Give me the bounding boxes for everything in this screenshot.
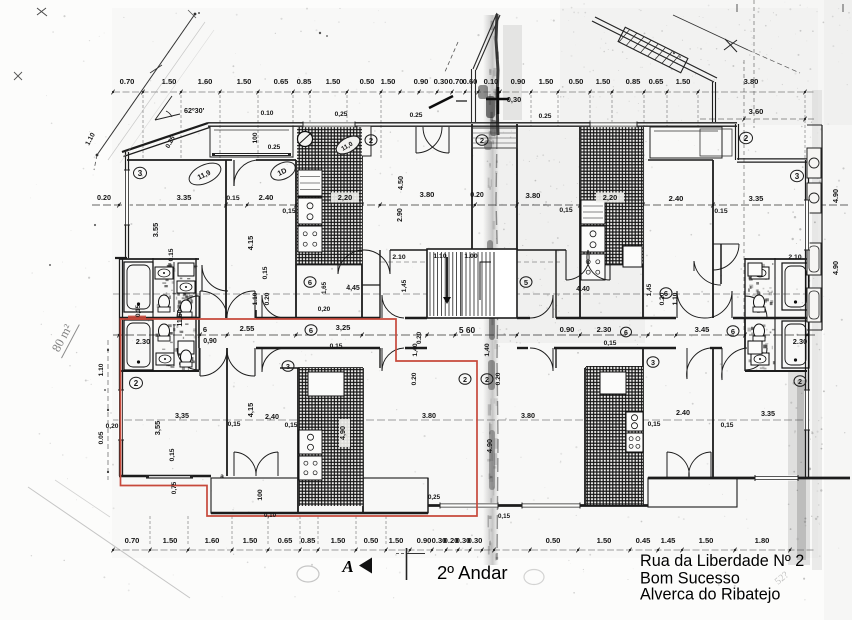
svg-text:100: 100: [257, 489, 264, 501]
svg-text:3.80: 3.80: [744, 77, 759, 86]
svg-text:1.50: 1.50: [699, 536, 714, 545]
svg-text:1,40: 1,40: [412, 343, 419, 356]
svg-text:2: 2: [485, 375, 489, 384]
svg-text:a: a: [220, 473, 224, 480]
svg-text:4,90: 4,90: [338, 426, 347, 440]
svg-text:0.50: 0.50: [364, 536, 379, 545]
svg-text:0,20: 0,20: [318, 306, 331, 313]
svg-text:2: 2: [744, 134, 749, 143]
svg-text:1,45: 1,45: [646, 283, 653, 296]
svg-text:3.80: 3.80: [422, 411, 436, 420]
svg-text:0.70: 0.70: [449, 77, 464, 86]
svg-text:1.50: 1.50: [596, 77, 611, 86]
svg-text:2: 2: [480, 136, 484, 145]
svg-text:2.30: 2.30: [597, 325, 612, 334]
svg-text:0.50: 0.50: [360, 77, 375, 86]
svg-text:1.10: 1.10: [98, 363, 105, 376]
svg-text:0.70: 0.70: [120, 77, 135, 86]
svg-text:5 60: 5 60: [459, 325, 476, 335]
svg-text:3: 3: [651, 358, 655, 367]
svg-text:1.10: 1.10: [433, 253, 446, 260]
svg-text:2.40: 2.40: [669, 194, 684, 203]
svg-text:3,55: 3,55: [153, 421, 162, 435]
svg-text:3,25: 3,25: [336, 323, 352, 332]
svg-text:2,40: 2,40: [265, 412, 279, 421]
svg-text:0,15: 0,15: [228, 421, 241, 428]
svg-text:6: 6: [309, 326, 313, 335]
svg-text:0,15: 0,15: [169, 448, 176, 461]
svg-text:100: 100: [252, 132, 259, 143]
svg-text:0.65: 0.65: [278, 536, 294, 545]
svg-text:0,15: 0,15: [559, 207, 572, 214]
svg-text:1.50: 1.50: [389, 536, 404, 545]
svg-text:3.80: 3.80: [521, 411, 535, 420]
svg-text:0.25: 0.25: [410, 112, 423, 119]
svg-text:0,15: 0,15: [330, 343, 343, 350]
svg-text:3,35: 3,35: [175, 411, 189, 420]
svg-text:6: 6: [203, 325, 207, 334]
svg-text:1,65: 1,65: [321, 281, 328, 294]
svg-text:0.50: 0.50: [569, 77, 584, 86]
svg-text:0.85: 0.85: [297, 77, 313, 86]
svg-text:2: 2: [798, 377, 802, 386]
svg-text:0.15: 0.15: [168, 248, 175, 261]
svg-text:0,15: 0,15: [648, 421, 661, 428]
svg-text:0,15: 0,15: [721, 422, 734, 429]
svg-text:4.40: 4.40: [576, 286, 590, 293]
svg-text:0,15: 0,15: [135, 304, 142, 317]
svg-text:0.20: 0.20: [97, 193, 111, 202]
svg-text:0.20: 0.20: [416, 331, 423, 344]
svg-text:4.90: 4.90: [831, 189, 840, 203]
svg-text:Rua da Liberdade Nº 2: Rua da Liberdade Nº 2: [640, 552, 804, 570]
svg-text:0.30: 0.30: [434, 77, 449, 86]
svg-text:1.00: 1.00: [464, 253, 477, 260]
svg-text:1,45: 1,45: [401, 279, 408, 292]
svg-text:0.65: 0.65: [274, 77, 290, 86]
svg-text:1.10: 1.10: [672, 292, 679, 305]
svg-text:2.30: 2.30: [793, 337, 807, 346]
svg-text:2,20: 2,20: [338, 193, 352, 202]
svg-text:0.10: 0.10: [484, 77, 499, 86]
svg-text:3.45: 3.45: [695, 325, 711, 334]
svg-text:11,50: 11,50: [177, 309, 184, 326]
svg-text:2: 2: [463, 375, 467, 384]
svg-text:62º30': 62º30': [184, 106, 205, 115]
svg-text:3.80: 3.80: [526, 191, 541, 200]
svg-text:6: 6: [624, 330, 628, 337]
svg-text:0.45: 0.45: [636, 536, 652, 545]
svg-text:0,15: 0,15: [282, 208, 295, 215]
svg-text:6: 6: [731, 327, 735, 336]
svg-text:2.40: 2.40: [676, 408, 690, 417]
svg-text:0,15: 0,15: [604, 340, 617, 347]
svg-text:1.50: 1.50: [326, 77, 341, 86]
svg-text:2.30: 2.30: [136, 337, 150, 346]
svg-text:2: 2: [134, 379, 139, 388]
svg-text:1.50: 1.50: [676, 77, 691, 86]
svg-text:1.50: 1.50: [237, 77, 252, 86]
svg-text:0.70: 0.70: [125, 536, 140, 545]
svg-text:4.50: 4.50: [396, 176, 405, 190]
svg-text:3: 3: [795, 172, 800, 181]
svg-text:0,25: 0,25: [428, 494, 441, 501]
svg-text:1.50: 1.50: [162, 77, 177, 86]
svg-text:1.50: 1.50: [539, 77, 554, 86]
svg-text:0.15: 0.15: [226, 195, 239, 202]
svg-text:0,15: 0,15: [285, 422, 298, 429]
svg-text:1.50: 1.50: [381, 77, 396, 86]
svg-text:0.20: 0.20: [264, 292, 271, 305]
svg-text:4.90: 4.90: [831, 261, 840, 275]
svg-text:0,20: 0,20: [106, 423, 119, 430]
svg-text:1.10: 1.10: [252, 292, 259, 305]
svg-text:4,45: 4,45: [346, 285, 360, 292]
svg-text:0,75: 0,75: [171, 481, 178, 494]
svg-text:3: 3: [138, 169, 143, 178]
svg-text:2º Andar: 2º Andar: [437, 562, 508, 583]
svg-text:3.55: 3.55: [151, 223, 160, 237]
svg-text:2: 2: [369, 136, 373, 145]
svg-text:A: A: [341, 557, 353, 576]
svg-text:1.60: 1.60: [198, 77, 213, 86]
svg-text:3: 3: [286, 364, 290, 371]
svg-text:0.15: 0.15: [714, 208, 727, 215]
svg-text:1.50: 1.50: [243, 536, 258, 545]
svg-text:0.20: 0.20: [495, 372, 502, 385]
svg-text:0,15: 0,15: [498, 513, 511, 520]
svg-text:5: 5: [524, 278, 528, 287]
svg-text:0.20: 0.20: [659, 292, 666, 305]
svg-text:0.30: 0.30: [468, 536, 483, 545]
svg-text:3.80: 3.80: [420, 190, 435, 199]
svg-text:0.25: 0.25: [539, 113, 552, 120]
svg-text:0.90: 0.90: [511, 77, 526, 86]
svg-text:0.20: 0.20: [411, 372, 418, 385]
svg-text:0.90: 0.90: [417, 536, 432, 545]
svg-text:2.90: 2.90: [397, 208, 404, 222]
svg-text:2.40: 2.40: [259, 193, 274, 202]
svg-text:2,20: 2,20: [603, 193, 617, 202]
svg-text:1.45: 1.45: [661, 536, 677, 545]
svg-text:3.60: 3.60: [749, 107, 764, 116]
svg-text:4,15: 4,15: [246, 403, 255, 417]
svg-text:0,25: 0,25: [335, 111, 348, 118]
svg-text:0,15: 0,15: [262, 266, 269, 279]
svg-text:0.05: 0.05: [98, 431, 105, 444]
svg-text:4.15: 4.15: [246, 236, 255, 250]
svg-text:1.50: 1.50: [597, 536, 612, 545]
svg-text:1.80: 1.80: [755, 536, 770, 545]
svg-text:1.50: 1.50: [163, 536, 178, 545]
svg-text:6: 6: [308, 278, 312, 287]
svg-text:1.50: 1.50: [331, 536, 346, 545]
svg-text:4.90: 4.90: [485, 439, 494, 453]
svg-text:0.50: 0.50: [546, 536, 561, 545]
svg-text:3.35: 3.35: [749, 194, 765, 203]
svg-text:2.10: 2.10: [392, 254, 405, 261]
svg-text:2.10: 2.10: [788, 254, 801, 261]
svg-text:0.25: 0.25: [268, 144, 281, 151]
svg-text:3.35: 3.35: [761, 409, 775, 418]
svg-text:0.85: 0.85: [626, 77, 642, 86]
svg-text:1.60: 1.60: [205, 536, 220, 545]
svg-text:0.20: 0.20: [470, 192, 484, 199]
svg-text:Alverca do Ribatejo: Alverca do Ribatejo: [640, 586, 780, 604]
svg-text:0.90: 0.90: [414, 77, 429, 86]
svg-text:0.85: 0.85: [301, 536, 317, 545]
svg-text:3.35: 3.35: [177, 193, 193, 202]
svg-text:1,40: 1,40: [484, 343, 491, 356]
svg-text:0.65: 0.65: [649, 77, 665, 86]
svg-text:0,90: 0,90: [203, 338, 217, 345]
svg-text:0.90: 0.90: [560, 325, 575, 334]
svg-text:2.55: 2.55: [240, 324, 256, 333]
svg-text:0.10: 0.10: [261, 110, 274, 117]
svg-text:0,10: 0,10: [264, 512, 277, 519]
